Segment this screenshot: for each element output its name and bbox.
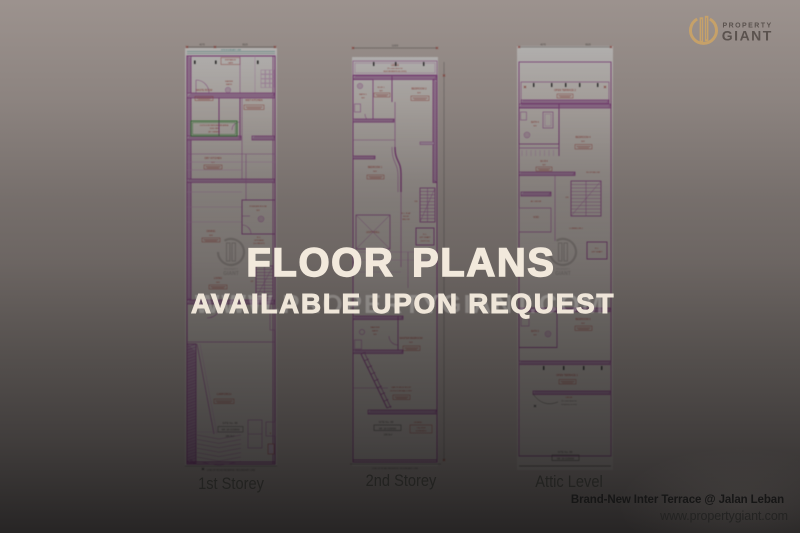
svg-text:GIANT: GIANT — [722, 28, 773, 44]
